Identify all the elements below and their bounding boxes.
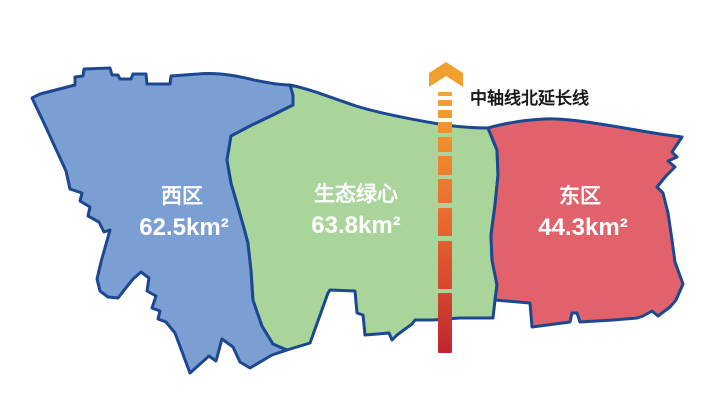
axis-label: 中轴线北延长线 xyxy=(470,88,589,108)
axis-dash xyxy=(438,100,452,106)
axis-dash xyxy=(438,137,452,152)
axis-dash xyxy=(438,92,452,96)
axis-dash xyxy=(438,110,452,118)
axis-dash xyxy=(438,208,452,236)
region-east-name: 东区 xyxy=(559,184,601,208)
region-west-name: 西区 xyxy=(161,185,203,208)
axis-arrow-up-icon xyxy=(429,62,463,87)
axis-dash xyxy=(438,179,452,203)
map-svg: 中轴线北延长线 西区 62.5km² 生态绿心 63.8km² 东区 44.3k… xyxy=(0,0,718,407)
axis-dashed-line xyxy=(438,92,452,353)
region-green-heart-area: 63.8km² xyxy=(311,212,400,239)
region-west-area: 62.5km² xyxy=(139,214,228,241)
region-green-heart-name: 生态绿心 xyxy=(314,182,398,206)
district-map: 中轴线北延长线 西区 62.5km² 生态绿心 63.8km² 东区 44.3k… xyxy=(0,0,718,407)
region-east-area: 44.3km² xyxy=(538,214,627,241)
axis-dash xyxy=(438,293,452,353)
axis-dash xyxy=(438,156,452,175)
axis-dash xyxy=(438,122,452,133)
axis-dash xyxy=(438,241,452,289)
